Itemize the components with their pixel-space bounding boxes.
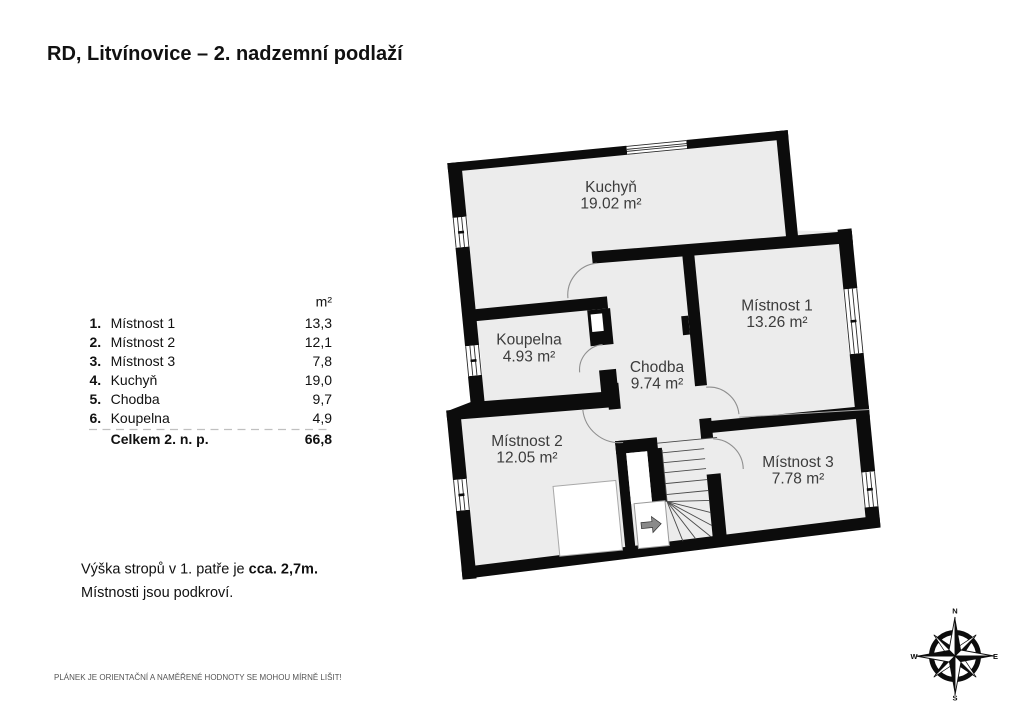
svg-text:12,1: 12,1 (305, 334, 332, 350)
svg-text:7.78 m²: 7.78 m² (772, 471, 825, 488)
svg-text:4,9: 4,9 (313, 410, 333, 426)
svg-text:19.02 m²: 19.02 m² (580, 196, 641, 213)
svg-text:4.93 m²: 4.93 m² (503, 349, 556, 366)
svg-text:N: N (952, 607, 957, 616)
svg-text:Výška stropů v 1. patře je cca: Výška stropů v 1. patře je cca. 2,7m. (81, 562, 318, 578)
svg-text:13.26 m²: 13.26 m² (746, 314, 807, 331)
svg-text:1.: 1. (90, 315, 102, 331)
svg-text:m²: m² (316, 294, 333, 310)
svg-text:Místnost 1: Místnost 1 (111, 315, 176, 331)
svg-text:2.: 2. (90, 334, 102, 350)
svg-text:Kuchyň: Kuchyň (585, 179, 637, 196)
svg-text:Kuchyň: Kuchyň (111, 372, 158, 388)
svg-text:9,7: 9,7 (313, 391, 333, 407)
svg-text:S: S (952, 694, 957, 703)
svg-text:Místnost 3: Místnost 3 (111, 353, 176, 369)
svg-text:19,0: 19,0 (305, 372, 332, 388)
svg-text:9.74 m²: 9.74 m² (631, 376, 684, 393)
svg-text:Koupelna: Koupelna (111, 410, 170, 426)
svg-text:Místnost 2: Místnost 2 (491, 433, 563, 450)
svg-text:W: W (910, 652, 918, 661)
svg-text:5.: 5. (90, 391, 102, 407)
svg-text:Celkem 2. n. p.: Celkem 2. n. p. (111, 431, 209, 447)
svg-text:RD, Litvínovice – 2. nadzemní: RD, Litvínovice – 2. nadzemní podlaží (47, 43, 404, 65)
svg-text:Koupelna: Koupelna (496, 332, 562, 349)
svg-text:7,8: 7,8 (313, 353, 333, 369)
svg-text:66,8: 66,8 (305, 431, 332, 447)
svg-text:Místnost 3: Místnost 3 (762, 454, 834, 471)
svg-text:13,3: 13,3 (305, 315, 332, 331)
svg-text:Místnosti jsou podkroví.: Místnosti jsou podkroví. (81, 585, 233, 601)
svg-text:Místnost 1: Místnost 1 (741, 298, 813, 315)
svg-text:3.: 3. (90, 353, 102, 369)
svg-text:Chodba: Chodba (111, 391, 160, 407)
svg-text:E: E (993, 652, 998, 661)
svg-text:Místnost 2: Místnost 2 (111, 334, 176, 350)
svg-text:PLÁNEK JE ORIENTAČNÍ A NAMĚŘEN: PLÁNEK JE ORIENTAČNÍ A NAMĚŘENÉ HODNOTY … (54, 673, 342, 682)
svg-text:Chodba: Chodba (630, 359, 685, 376)
svg-text:6.: 6. (90, 410, 102, 426)
svg-text:12.05 m²: 12.05 m² (496, 450, 557, 467)
svg-text:4.: 4. (90, 372, 102, 388)
